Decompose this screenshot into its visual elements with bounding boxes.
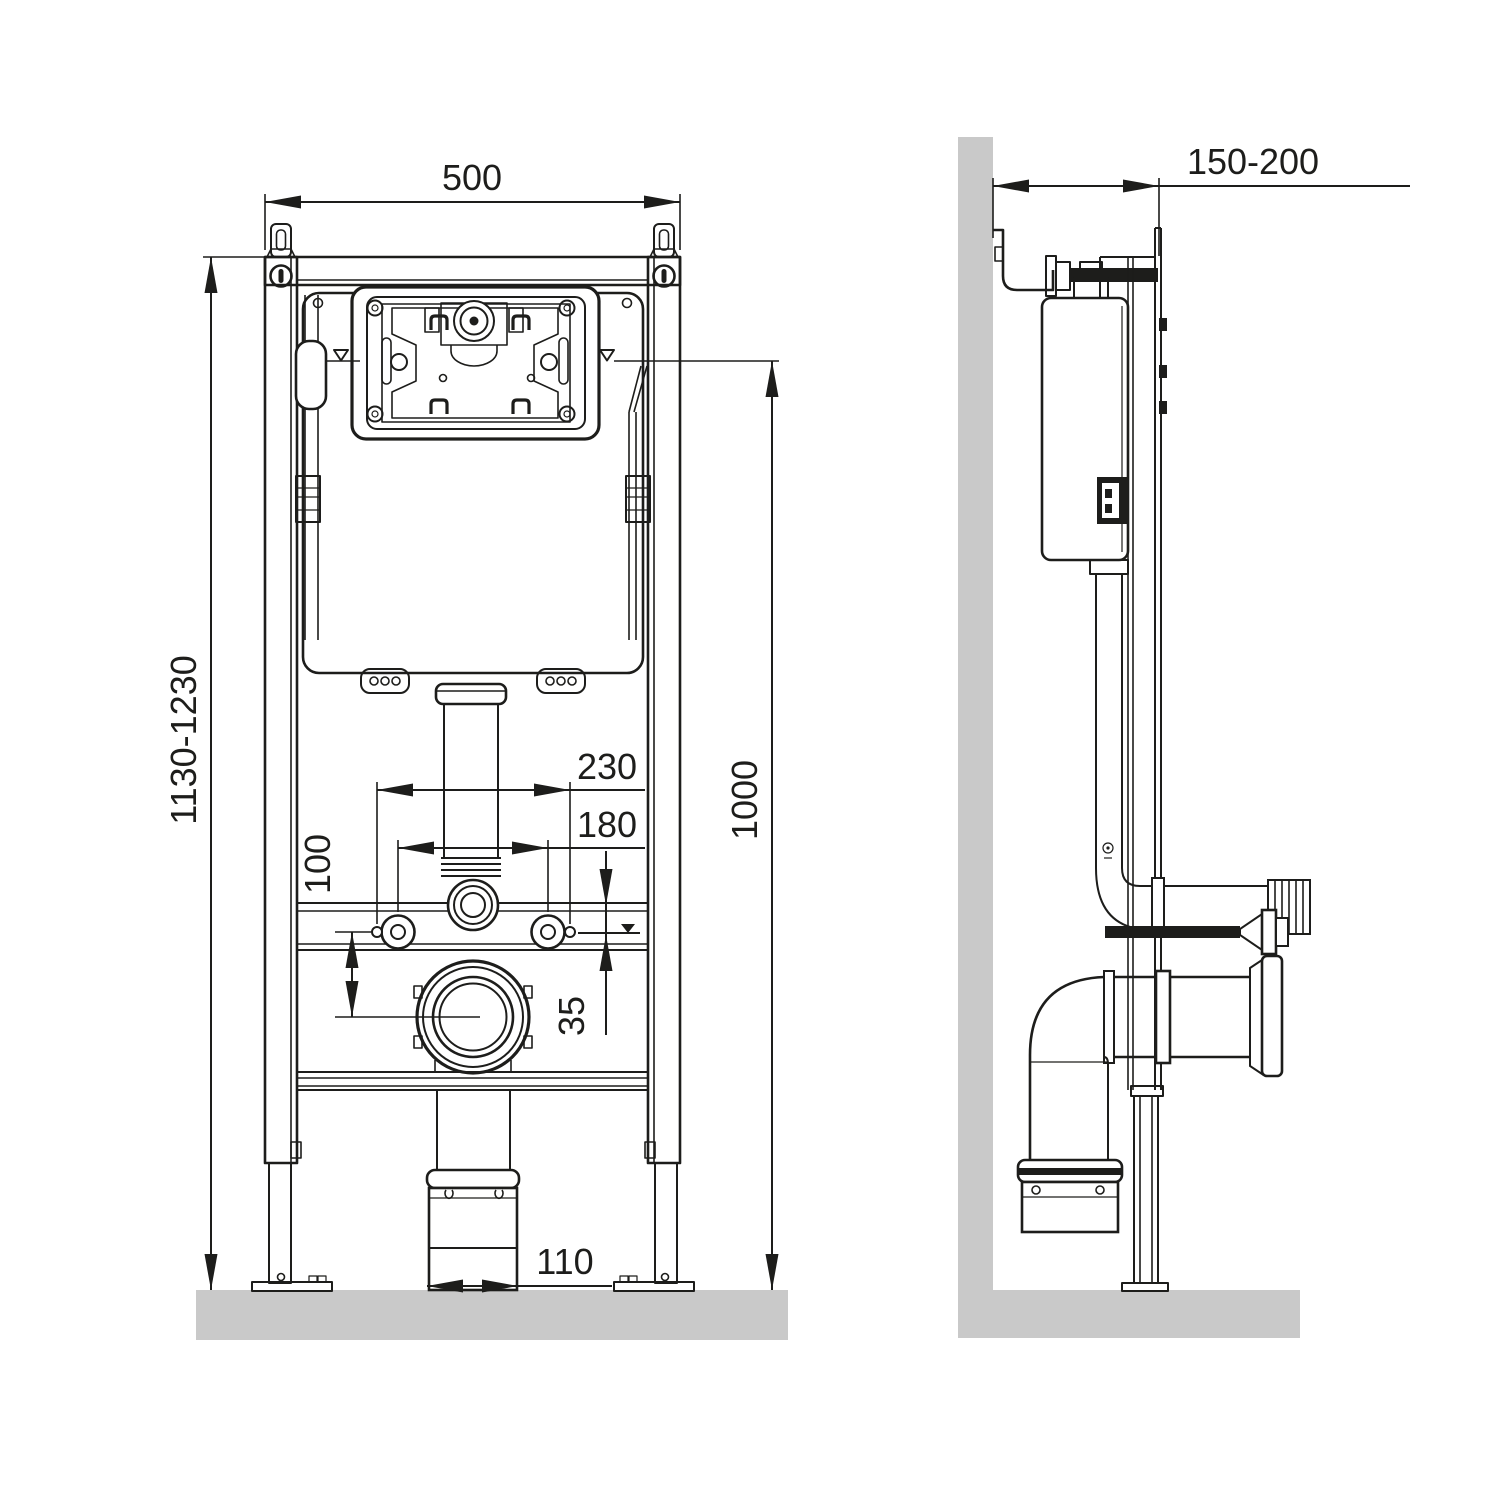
leg-right <box>614 1142 694 1291</box>
arrowhead <box>398 842 434 855</box>
flush-unit-detail <box>1105 504 1112 513</box>
elbow-inner <box>1122 868 1140 886</box>
dim-label-outlet-width: 110 <box>536 1241 593 1282</box>
arrowhead <box>265 196 301 209</box>
top-bolt-right <box>654 266 675 287</box>
cone-cap <box>1262 910 1276 954</box>
arrowhead <box>1123 180 1159 193</box>
arrowhead <box>600 935 613 971</box>
tab-slot <box>660 230 669 250</box>
pipe-bell <box>1090 560 1128 574</box>
leg-tube <box>269 1163 291 1283</box>
bolt-slot <box>279 269 284 283</box>
dim-label-upper-fixing: 230 <box>577 746 637 787</box>
tab-hole <box>370 677 378 685</box>
left-column <box>265 257 297 1163</box>
fixing-pin <box>372 927 382 937</box>
fill-valve-capsule <box>296 341 326 409</box>
arrowhead <box>766 1254 779 1290</box>
pushrod-tip <box>470 317 479 326</box>
dim-frame-width: 500 <box>265 157 680 250</box>
arrowhead <box>600 869 613 905</box>
arrowhead <box>644 196 680 209</box>
cone-tip <box>1276 918 1288 946</box>
arrowhead <box>205 1254 218 1290</box>
tab-hole <box>568 677 576 685</box>
level-mark-solid <box>621 924 635 933</box>
dim-label-level-offset: 35 <box>551 996 592 1036</box>
wall <box>958 137 993 1338</box>
bolt-slot <box>662 269 667 283</box>
tab-hole <box>381 677 389 685</box>
access-window <box>352 287 599 439</box>
rail-crossing-collar <box>1156 971 1170 1063</box>
dim-label-pan-fixing: 180 <box>577 804 637 845</box>
leg-collar <box>1131 1086 1163 1096</box>
arrowhead <box>766 361 779 397</box>
fixing-bush <box>382 916 415 949</box>
dim-label-drain-offset: 100 <box>297 834 338 894</box>
bracket-profile <box>993 230 1053 290</box>
foot-screw <box>278 1274 285 1281</box>
overflow-diagonal <box>629 366 641 412</box>
cistern-side <box>1042 257 1155 560</box>
flush-elbow-outlet <box>448 880 498 930</box>
installation-frame-drawing: 500 1130-1230 1000 230 <box>0 0 1500 1500</box>
floor-front <box>196 1290 788 1340</box>
dim-label-frame-height: 1130-1230 <box>163 655 204 825</box>
drawing-canvas: 500 1130-1230 1000 230 <box>0 0 1500 1500</box>
flush-pipe-side <box>1090 560 1310 936</box>
dim-flush-height: 1000 <box>614 361 779 1290</box>
tab-hole <box>546 677 554 685</box>
rod-cone <box>1240 914 1262 950</box>
flush-pipe-flange <box>436 684 506 704</box>
rail-clip <box>1159 401 1167 414</box>
dim-label-flush-height: 1000 <box>724 760 765 840</box>
arrowhead <box>205 257 218 293</box>
right-column <box>648 257 680 1163</box>
pan-rod <box>1105 926 1240 938</box>
elbow-ring <box>448 880 498 930</box>
foot-plate <box>252 1282 332 1291</box>
connector-body <box>296 476 320 522</box>
fixing-pin <box>565 927 575 937</box>
foot-plate-side <box>1122 1283 1168 1291</box>
stub-joint-collar <box>1104 971 1114 1063</box>
level-triangle-left <box>334 350 348 361</box>
elbow-outer-curve <box>1030 977 1104 1164</box>
bottom-rail <box>297 1072 648 1090</box>
arrowhead <box>512 842 548 855</box>
tab-slot <box>277 230 286 250</box>
hanger-tab-right <box>650 224 678 257</box>
arrowhead <box>346 981 359 1017</box>
rail-clip <box>1159 318 1167 331</box>
arrowhead <box>993 180 1029 193</box>
overflow-diagonal <box>634 366 647 412</box>
dim-label-wall-distance: 150-200 <box>1187 141 1319 182</box>
dim-frame-height: 1130-1230 <box>163 257 265 1290</box>
flush-unit-detail <box>1105 489 1112 498</box>
drain-side <box>1018 956 1282 1232</box>
outlet-box <box>429 1188 517 1290</box>
leg-left <box>252 1142 332 1291</box>
dim-wall-distance: 150-200 <box>993 141 1410 256</box>
outlet-disc <box>1262 956 1282 1076</box>
foot-plate <box>614 1282 694 1291</box>
tab-hole <box>557 677 565 685</box>
level-triangle-right <box>600 350 614 361</box>
outlet-flare <box>1250 960 1262 1074</box>
cistern-hole <box>623 299 632 308</box>
top-bolt-left <box>271 266 292 287</box>
dim-pan-fixing-spacing: 180 <box>398 804 645 912</box>
front-view: 500 1130-1230 1000 230 <box>163 157 788 1340</box>
tab-body <box>654 224 674 257</box>
rod-nut <box>1056 262 1070 290</box>
dim-label-frame-width: 500 <box>442 157 502 198</box>
foot-screw <box>662 1274 669 1281</box>
arrowhead <box>377 784 413 797</box>
rail-clip <box>1159 365 1167 378</box>
elbow-inner-curve <box>1104 1057 1108 1164</box>
leg-tube <box>655 1163 677 1283</box>
bottom-outlet <box>427 1090 519 1290</box>
fixing-bush <box>532 916 565 949</box>
arrowhead <box>534 784 570 797</box>
side-connector-left <box>296 476 320 522</box>
side-view: 150-200 <box>958 137 1410 1338</box>
flange-seal-band <box>1018 1168 1122 1175</box>
outlet-flange <box>427 1170 519 1188</box>
tab-hole <box>392 677 400 685</box>
brand-mark-dot <box>1106 846 1109 849</box>
floor-side <box>993 1290 1300 1338</box>
hanger-tab-left <box>267 224 295 257</box>
tab-body <box>271 224 291 257</box>
threaded-rod <box>1070 268 1158 282</box>
